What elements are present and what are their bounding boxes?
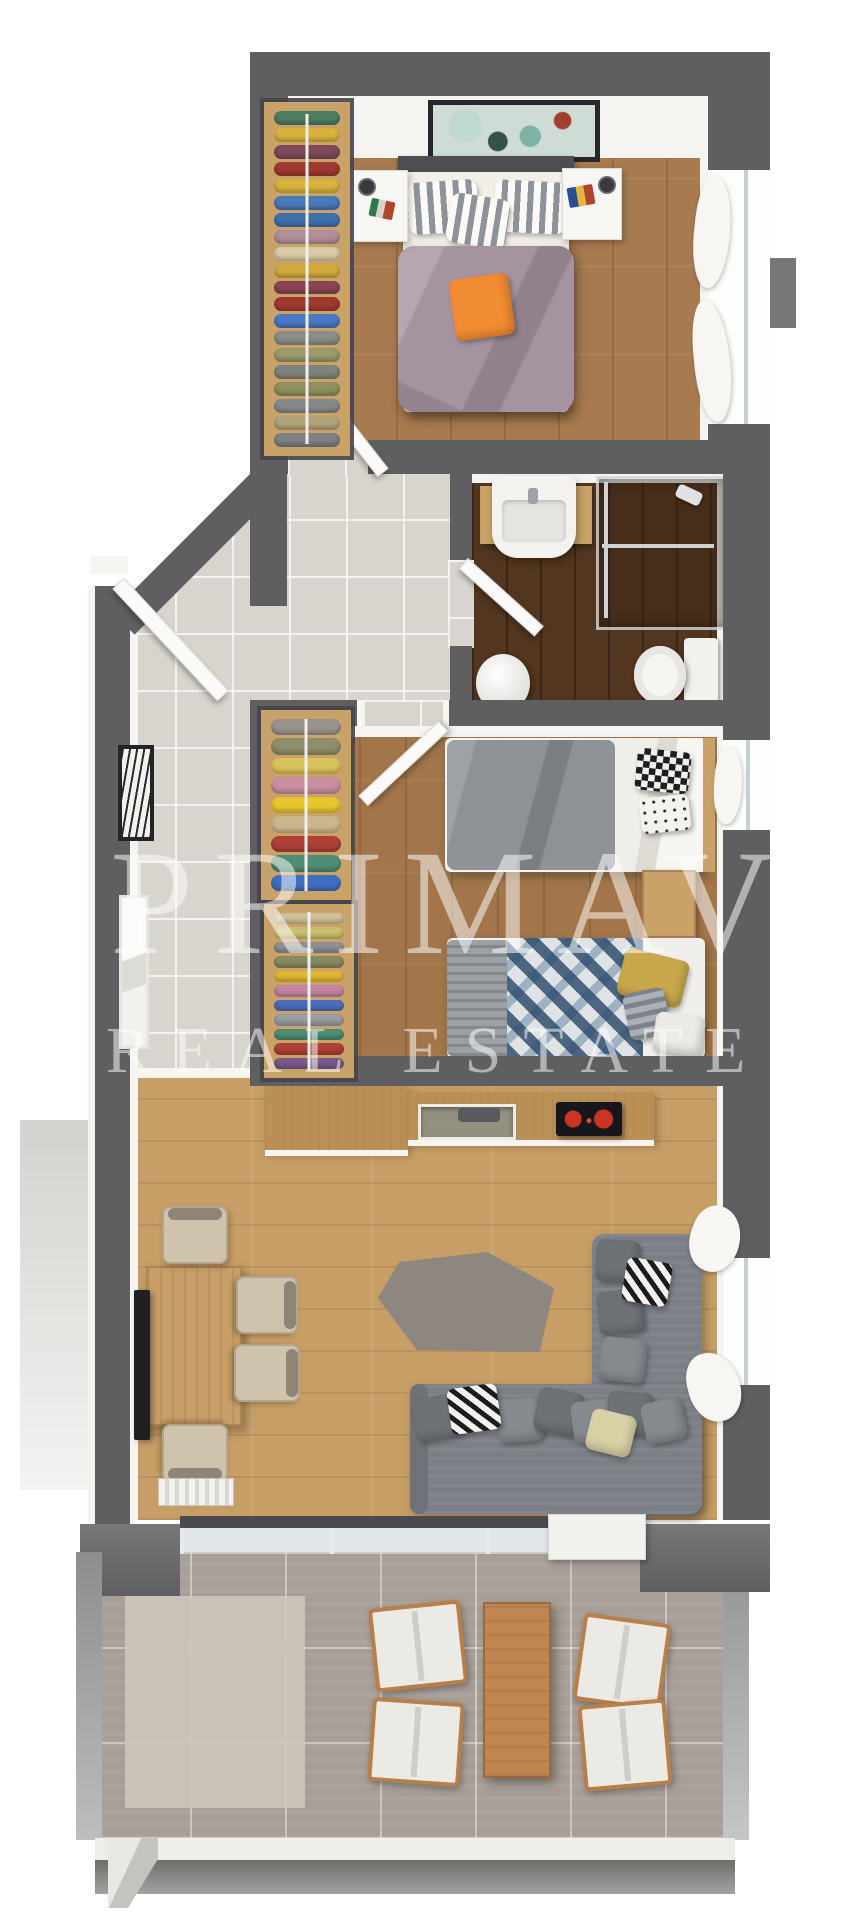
clothes-item [271,777,341,793]
shower-pipe-vertical [604,482,608,618]
clothes-item [271,836,341,852]
clothes-item [274,162,340,176]
kitchen-counter-deep-edge [265,1150,408,1156]
clothes-item [274,264,340,278]
sofa-pillow-bw-top [621,1256,674,1307]
sliding-door-open-panel [548,1514,646,1560]
bed-pillow-center [444,192,511,251]
kids-wall-top-right [443,700,770,726]
clothes-item [274,942,344,953]
entry-door-frame [90,556,128,574]
dining-chair-right-1 [236,1276,298,1334]
clothes-item [274,281,340,295]
toilet-tank [684,638,718,702]
terrace-railing-base [95,1860,735,1894]
clothes-item [274,145,340,159]
kids-pillow-checkered [634,747,692,794]
kitchen-counter-narrow-edge [408,1140,654,1146]
clothes-item [271,738,341,754]
clothes-item [274,314,340,328]
sink-basin [502,500,566,542]
bedroom-wall-bottom-right [368,440,770,474]
clothes-item [271,719,341,735]
bedroom-window-glass [744,170,748,424]
kids-side-table [642,870,696,938]
clothes-item [274,971,344,982]
terrace-chair-4 [577,1698,672,1791]
master-wardrobe [264,102,350,456]
clothes-item [274,348,340,362]
clothes-item [274,297,340,311]
clothes-item [271,855,341,871]
clothes-item [274,1000,344,1011]
shower-pipe-horizontal [602,544,714,548]
right-wall-kids-upper [723,726,770,740]
bedside-lamp-left [358,178,376,196]
shower-enclosure [596,476,726,630]
bedroom-painting [428,100,600,162]
clothes-item [274,365,340,379]
kids-door-jamb-left [357,700,363,726]
orange-accent-pillow [448,272,516,342]
radiator [158,1478,234,1506]
cooktop [556,1102,622,1136]
kitchen-faucet [458,1108,500,1122]
clothes-item [274,213,340,227]
kids-pillow-dotted [638,793,691,834]
clothes-item [274,927,344,938]
clothes-item [271,758,341,774]
kids-window-glass [746,740,750,830]
kids-bed-upper-headboard [703,738,715,872]
hall-art-frame-dark [118,745,154,841]
clothes-item [274,433,340,447]
clothes-item [274,1029,344,1040]
terrace-chair-3 [572,1612,671,1711]
clothes-item [274,331,340,345]
clothes-item [271,875,341,891]
wall-tv [134,1290,150,1440]
terrace-chair-1 [368,1599,468,1692]
clothes-item [274,179,340,193]
terrace-chair-2 [367,1697,465,1787]
clothes-item [274,913,344,924]
clothes-item [274,196,340,210]
sofa-pillow-bw-bottom [446,1383,502,1436]
clothes-item [274,382,340,396]
bedroom-wall-right-upper [708,52,770,170]
dining-table [146,1266,242,1426]
floor-plan-render: PRIMAVERA REAL ESTATE [0,0,864,1920]
sofa-armrest [410,1384,428,1514]
right-wall-living-lower [723,1405,770,1520]
hall-living-threshold [133,1068,267,1078]
clothes-item [274,399,340,413]
terrace-left-wall [76,1552,102,1840]
sink-faucet [528,488,538,504]
terrace-table [483,1602,551,1778]
terrace-wall-stub-right [640,1524,770,1592]
kids-wardrobe-lower [264,904,354,1078]
clothes-item [274,128,340,142]
clothes-item [274,230,340,244]
toilet-bowl [634,646,686,704]
right-wall-kids-lower [723,830,770,1056]
clothes-item [274,247,340,261]
clothes-item [274,111,340,125]
clothes-item [271,816,341,832]
kids-bed-upper-duvet [447,740,615,870]
clothes-item [274,1058,344,1069]
bedside-lamp-right [598,176,616,194]
kids-pillow-white [651,1011,706,1058]
hallway-left-wall [95,586,130,1528]
dining-chair-top [162,1206,228,1264]
clothes-item [274,956,344,967]
terrace-railing-sill [95,1838,735,1860]
clothes-item [274,985,344,996]
bathroom-wall-left-lower [450,646,472,704]
bedroom-wall-top [250,52,770,96]
living-window-glass [744,1258,748,1385]
bathroom-wall-left-upper [450,474,472,560]
dining-chair-bottom [162,1424,228,1482]
kids-door-jamb-right [443,700,449,726]
clothes-item [274,1043,344,1054]
kitchen-counter-deep [265,1086,408,1152]
terrace-right-wall [723,1592,749,1840]
dining-chair-right-2 [234,1344,300,1402]
clothes-item [274,416,340,430]
clothes-item [271,797,341,813]
exterior-shadow-band [20,1120,88,1490]
right-wall-bathroom [723,444,770,726]
kids-wardrobe-upper [261,710,351,900]
hall-mirror-frame-light [119,895,149,1049]
hallway-left-wall-outer-edge [88,586,95,1528]
clothes-item [274,1014,344,1025]
kids-bed-lower-knit-blanket [447,940,509,1056]
terrace-rug [125,1596,305,1808]
